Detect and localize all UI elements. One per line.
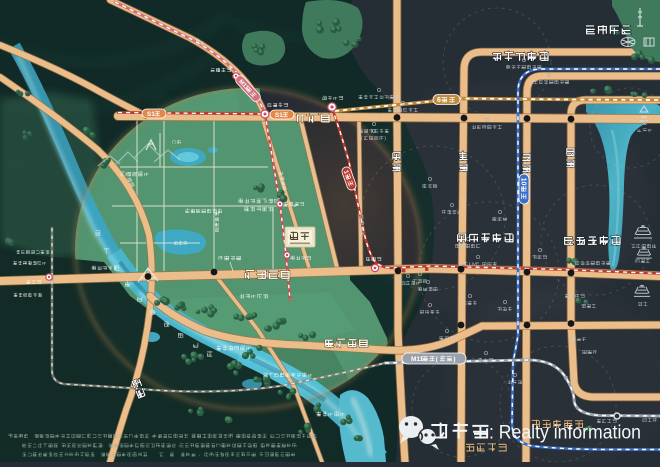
svg-text:S1: S1 bbox=[147, 111, 155, 118]
svg-text:): ) bbox=[453, 356, 455, 363]
svg-text:6: 6 bbox=[437, 97, 441, 104]
svg-text:LIVE·: LIVE· bbox=[469, 262, 481, 268]
svg-text:M11: M11 bbox=[411, 356, 424, 363]
svg-text:: Realty information: : Realty information bbox=[489, 423, 641, 444]
svg-text:S1: S1 bbox=[275, 112, 283, 119]
svg-text:10: 10 bbox=[519, 178, 526, 186]
